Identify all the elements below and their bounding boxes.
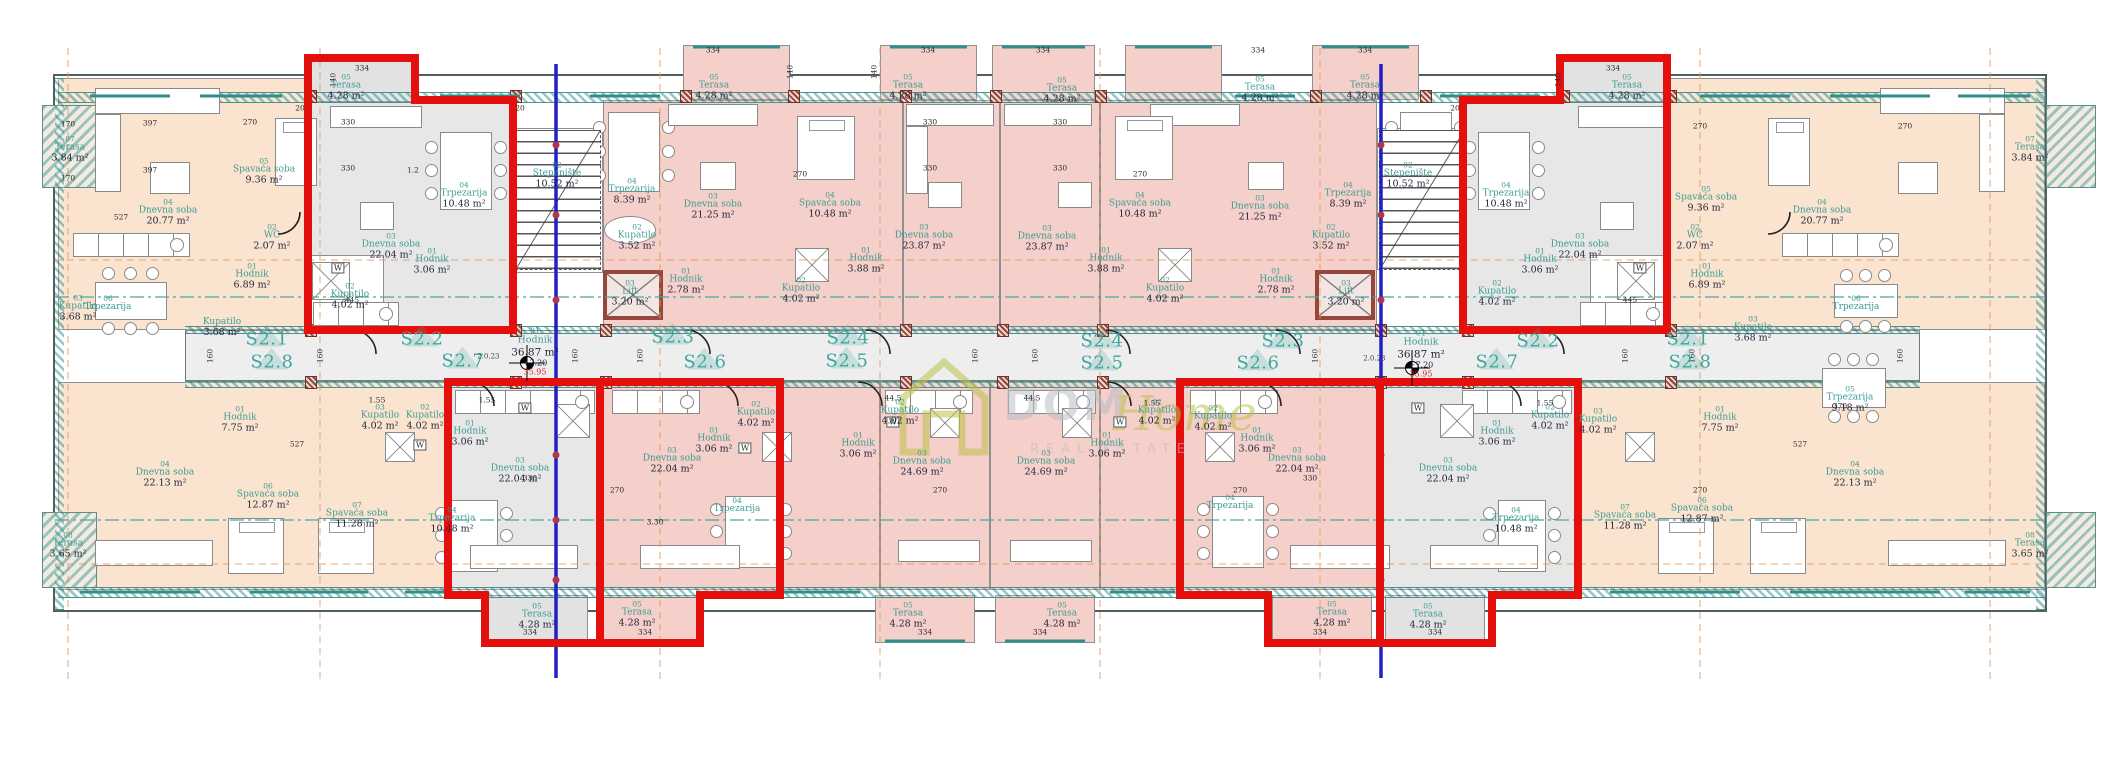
unit-label: S2.8 bbox=[1669, 352, 1712, 373]
chair bbox=[124, 322, 137, 335]
dimension-label: 1.55 bbox=[479, 396, 496, 405]
shower bbox=[762, 432, 792, 462]
shower bbox=[1205, 432, 1235, 462]
room-label: 03Dnevna soba21.25 m² bbox=[684, 193, 743, 222]
room-label: 02Kupatilo4.02 m² bbox=[1194, 405, 1232, 434]
room-label: 05Terasa4.28 m² bbox=[328, 74, 365, 103]
unit-label: S2.5 bbox=[1081, 353, 1124, 374]
room-label: 02WC2.07 m² bbox=[254, 224, 291, 253]
room-label: 01Hodnik6.89 m² bbox=[1689, 263, 1726, 292]
room-label: 05Terasa4.28 m² bbox=[1609, 74, 1646, 103]
sofa bbox=[906, 104, 994, 126]
room-area: 4.02 m² bbox=[782, 295, 820, 305]
unit-triangle-mark bbox=[831, 324, 865, 346]
shower bbox=[385, 432, 415, 462]
dimension-label: 330 bbox=[341, 164, 355, 173]
room-label: 01Hodnik3.06 m² bbox=[414, 248, 451, 277]
room-label: 03Dnevna soba24.69 m² bbox=[1017, 450, 1076, 479]
unit-triangle-mark bbox=[446, 347, 480, 369]
unit-triangle-mark bbox=[1671, 325, 1705, 347]
room-label: 07Spavaća soba11.28 m² bbox=[1594, 504, 1656, 533]
column bbox=[1462, 376, 1474, 389]
floor-plan-canvas: 07Terasa3.84 m²04Dnevna soba20.77 m²05Sp… bbox=[0, 0, 2102, 768]
chair bbox=[435, 551, 448, 564]
unit-label: S2.8 bbox=[251, 352, 294, 373]
dimension-label: 160 bbox=[1031, 349, 1040, 363]
chair bbox=[710, 525, 723, 538]
room-area: 6.89 m² bbox=[234, 281, 271, 291]
coffee-table bbox=[360, 202, 394, 230]
room-area: 10.48 m² bbox=[1109, 210, 1171, 220]
shower bbox=[1062, 408, 1092, 438]
unit-label: S2.3 bbox=[652, 327, 695, 348]
room-label: 03Dnevna soba22.04 m² bbox=[1551, 233, 1610, 262]
room-label: 01Hodnik3.06 m² bbox=[696, 427, 733, 456]
column bbox=[1375, 376, 1387, 389]
washing-machine-mark: W bbox=[518, 403, 531, 414]
unit-label: S2.5 bbox=[826, 351, 869, 372]
room-area: 4.28 m² bbox=[1410, 621, 1447, 631]
room-label: 03Lift3.20 m² bbox=[612, 280, 649, 309]
room-label: 04Trpezarija8.39 m² bbox=[1325, 182, 1372, 211]
room-label: 02Kupatilo4.02 m² bbox=[331, 283, 369, 312]
coffee-table bbox=[1058, 182, 1092, 208]
washing-machine-mark: W bbox=[413, 440, 426, 451]
floor-plan: 07Terasa3.84 m²04Dnevna soba20.77 m²05Sp… bbox=[0, 0, 2102, 768]
room-area: 22.04 m² bbox=[362, 251, 421, 261]
chair bbox=[779, 525, 792, 538]
room-label: 05Terasa4.28 m² bbox=[1410, 603, 1447, 632]
kitchen-sink bbox=[170, 238, 184, 252]
sofa bbox=[1430, 545, 1538, 569]
hall-elevation: +7.20 bbox=[1397, 361, 1445, 370]
dimension-label: 160 bbox=[206, 349, 215, 363]
room-label: 05Terasa4.28 m² bbox=[619, 601, 656, 630]
unit-triangle-mark bbox=[255, 348, 289, 370]
column bbox=[997, 376, 1009, 389]
room-area: 3.52 m² bbox=[1312, 242, 1350, 252]
room-label: 01Hodnik2.78 m² bbox=[668, 268, 705, 297]
chair bbox=[1197, 547, 1210, 560]
sofa bbox=[1888, 540, 2006, 566]
unit-triangle-mark bbox=[1521, 327, 1555, 349]
room-area: 9.36 m² bbox=[233, 176, 295, 186]
chair bbox=[1840, 269, 1853, 282]
room-area: 3.68 m² bbox=[59, 313, 97, 323]
unit-triangle-mark bbox=[1673, 348, 1707, 370]
kitchen-sink bbox=[1879, 238, 1893, 252]
room-area: 3.88 m² bbox=[1088, 265, 1125, 275]
room-label: 04Trpezarija10.48 m² bbox=[1483, 182, 1530, 211]
room-area: 2.78 m² bbox=[1258, 286, 1295, 296]
room-area: 3.84 m² bbox=[52, 154, 89, 164]
dimension-label: 330 bbox=[1053, 118, 1067, 127]
unit-label: S2.4 bbox=[827, 328, 870, 349]
dimension-label: 160 bbox=[1311, 349, 1320, 363]
chair bbox=[1859, 269, 1872, 282]
unit-triangle-mark bbox=[405, 325, 439, 347]
room-label: 07Spavaća soba11.28 m² bbox=[326, 502, 388, 531]
dimension-label: 44.5 bbox=[1024, 394, 1041, 403]
room-area: 23.87 m² bbox=[1018, 243, 1077, 253]
room-area: 4.02 m² bbox=[331, 301, 369, 311]
room-label: 03Kupatilo3.68 m² bbox=[1734, 316, 1772, 345]
chair bbox=[1197, 525, 1210, 538]
bed-pillow bbox=[239, 522, 275, 533]
room-area: 3.06 m² bbox=[696, 445, 733, 455]
hall-level: 35.95 bbox=[511, 368, 559, 377]
dimension-label: 334 bbox=[1358, 46, 1372, 55]
dimension-label: 330 bbox=[923, 118, 937, 127]
dimension-label: 140 bbox=[1554, 73, 1563, 87]
corridor-hall-label: 01Hodnik36.87 m²+7.2035.952.0.23 bbox=[1397, 329, 1445, 380]
room-label: 05Spavaća soba9.36 m² bbox=[233, 158, 295, 187]
chair bbox=[494, 164, 507, 177]
room-area: 4.02 m² bbox=[1531, 422, 1569, 432]
sofa bbox=[1578, 106, 1670, 128]
room-label: 03Lift3.20 m² bbox=[1328, 280, 1365, 309]
unit-label: S2.2 bbox=[401, 329, 444, 350]
bed-pillow bbox=[283, 122, 310, 133]
kitchen-sink bbox=[1076, 395, 1090, 409]
room-label: 04Trpezarija bbox=[714, 497, 761, 515]
dimension-label: 140 bbox=[786, 65, 795, 79]
room-area: 20.77 m² bbox=[139, 217, 198, 227]
dimension-label: 527 bbox=[290, 440, 304, 449]
dimension-label: 170 bbox=[61, 174, 75, 183]
dimension-label: 397 bbox=[143, 166, 157, 175]
room-area: 22.04 m² bbox=[1551, 251, 1610, 261]
room-label: 03Dnevna soba22.04 m² bbox=[1268, 447, 1327, 476]
chair bbox=[779, 547, 792, 560]
room-label: 05Terasa4.28 m² bbox=[1044, 77, 1081, 106]
room-area: 3.68 m² bbox=[1734, 334, 1772, 344]
chair bbox=[1859, 320, 1872, 333]
dimension-label: 160 bbox=[636, 349, 645, 363]
room-label: 04Trpezarija10.48 m² bbox=[1493, 507, 1540, 536]
column bbox=[1420, 90, 1432, 103]
room-area: 4.02 m² bbox=[1146, 295, 1184, 305]
dimension-label: 270 bbox=[1898, 122, 1912, 131]
dimension-label: 445 bbox=[1623, 296, 1637, 305]
room-area: 4.02 m² bbox=[1138, 417, 1176, 427]
room-area: 21.25 m² bbox=[684, 211, 743, 221]
room-name: Trpezarija bbox=[714, 505, 761, 515]
column bbox=[510, 90, 522, 103]
unit-label: S2.7 bbox=[1476, 352, 1519, 373]
column bbox=[1665, 376, 1677, 389]
room-area: 3.06 m² bbox=[1479, 438, 1516, 448]
column bbox=[510, 376, 522, 389]
room-area: 22.04 m² bbox=[1419, 475, 1478, 485]
chair bbox=[146, 267, 159, 280]
room-label: 04Spavaća soba10.48 m² bbox=[1109, 192, 1171, 221]
sofa bbox=[1290, 545, 1390, 569]
room-area: 3.06 m² bbox=[1522, 266, 1559, 276]
dimension-label: 527 bbox=[114, 213, 128, 222]
room-label: 02Kupatilo4.02 m² bbox=[782, 277, 820, 306]
kitchen-sink bbox=[575, 395, 589, 409]
room-area: 10.48 m² bbox=[1493, 525, 1540, 535]
bed-pillow bbox=[1127, 120, 1164, 131]
chair bbox=[662, 169, 675, 182]
room-name: Trpezarija bbox=[1207, 502, 1254, 512]
room-label: 02WC2.07 m² bbox=[1677, 224, 1714, 253]
hall-elevation: +7.20 bbox=[511, 359, 559, 368]
room-area: 4.02 m² bbox=[1194, 423, 1232, 433]
room-area: 22.04 m² bbox=[643, 465, 702, 475]
column bbox=[1095, 90, 1107, 103]
room-area: 4.28 m² bbox=[890, 92, 927, 102]
room-label: 03Dnevna soba24.69 m² bbox=[893, 450, 952, 479]
room-label: 03Dnevna soba22.04 m² bbox=[362, 233, 421, 262]
room-area: 9.36 m² bbox=[1675, 204, 1737, 214]
room-label: 01Hodnik2.78 m² bbox=[1258, 268, 1295, 297]
room-label: 07Terasa3.84 m² bbox=[52, 136, 89, 165]
room-label: 05Terasa4.28 m² bbox=[696, 74, 733, 103]
room-area: 3.06 m² bbox=[840, 450, 877, 460]
coffee-table bbox=[928, 182, 962, 208]
room-label: 03Dnevna soba22.04 m² bbox=[491, 457, 550, 486]
chair bbox=[1532, 141, 1545, 154]
corridor-hall-label: 01Hodnik36.87 m²+7.2035.952.0.23 bbox=[511, 327, 559, 378]
dimension-label: 397 bbox=[143, 119, 157, 128]
room-label: 04Dnevna soba20.77 m² bbox=[139, 199, 198, 228]
chair bbox=[425, 164, 438, 177]
column bbox=[305, 376, 317, 389]
dimension-label: 160 bbox=[1621, 349, 1630, 363]
kitchen-sink bbox=[1646, 307, 1660, 321]
shower bbox=[1625, 432, 1655, 462]
unit-label: S2.2 bbox=[1517, 331, 1560, 352]
coffee-table bbox=[1898, 162, 1938, 194]
dimension-label: 160 bbox=[971, 349, 980, 363]
room-block bbox=[2046, 105, 2096, 188]
dimension-label: 334 bbox=[355, 64, 369, 73]
room-label: 02Kupatilo4.02 m² bbox=[1138, 399, 1176, 428]
dimension-label: 270 bbox=[1133, 170, 1147, 179]
room-label: 02Kupatilo4.02 m² bbox=[1146, 277, 1184, 306]
column bbox=[1375, 324, 1387, 337]
room-area: 10.52 m² bbox=[1384, 180, 1432, 190]
dimension-label: 527 bbox=[1793, 440, 1807, 449]
room-label: 01Hodnik3.06 m² bbox=[1479, 420, 1516, 449]
room-label: 02Kupatilo4.02 m² bbox=[881, 399, 919, 428]
kitchen-sink bbox=[379, 307, 393, 321]
kitchen-sink bbox=[953, 395, 967, 409]
sofa bbox=[1979, 114, 2005, 192]
sofa bbox=[898, 540, 980, 562]
unit-triangle-mark bbox=[1241, 349, 1275, 371]
room-label: 04Dnevna soba22.13 m² bbox=[136, 461, 195, 490]
room-area: 4.28 m² bbox=[1347, 92, 1384, 102]
hall-area: 36.87 m² bbox=[511, 347, 559, 359]
bed-pillow bbox=[1776, 122, 1803, 133]
hall-marker: 2.0.23 bbox=[1363, 355, 1385, 363]
room-label: 01Hodnik7.75 m² bbox=[1702, 406, 1739, 435]
column bbox=[997, 324, 1009, 337]
room-area: 7.75 m² bbox=[222, 424, 259, 434]
room-area: 12.87 m² bbox=[237, 501, 299, 511]
room-area: 8.39 m² bbox=[609, 196, 656, 206]
unit-label: S2.1 bbox=[1667, 329, 1710, 350]
dimension-label: 270 bbox=[1693, 486, 1707, 495]
room-area: 22.13 m² bbox=[1826, 479, 1885, 489]
dimension-label: 20 bbox=[1450, 104, 1460, 113]
room-label: 02Kupatilo4.02 m² bbox=[406, 404, 444, 433]
dimension-label: 270 bbox=[243, 118, 257, 127]
coffee-table bbox=[1600, 202, 1634, 230]
room-label: 04Trpezarija10.48 m² bbox=[429, 507, 476, 536]
room-area: 24.69 m² bbox=[1017, 468, 1076, 478]
unit-triangle-mark bbox=[1085, 349, 1119, 371]
room-area: 10.48 m² bbox=[1483, 200, 1530, 210]
dimension-label: 20 bbox=[295, 104, 305, 113]
room-label: 01Hodnik7.75 m² bbox=[222, 406, 259, 435]
room-label: 03Kupatilo4.02 m² bbox=[1579, 408, 1617, 437]
room-label: 02Kupatilo4.02 m² bbox=[737, 401, 775, 430]
unit-label: S2.6 bbox=[1237, 353, 1280, 374]
room-area: 2.07 m² bbox=[254, 242, 291, 252]
room-area: 4.28 m² bbox=[1609, 92, 1646, 102]
room-area: 4.28 m² bbox=[619, 619, 656, 629]
dimension-label: 1.2 bbox=[407, 166, 419, 175]
room-area: 4.28 m² bbox=[519, 621, 556, 631]
room-label: 01Hodnik3.06 m² bbox=[1089, 432, 1126, 461]
room-block bbox=[780, 382, 880, 590]
room-label: 04Spavaća soba10.48 m² bbox=[799, 192, 861, 221]
room-label: 01Hodnik3.06 m² bbox=[840, 432, 877, 461]
room-label: 05Terasa4.28 m² bbox=[1314, 601, 1351, 630]
column bbox=[680, 90, 692, 103]
room-label: 03Dnevna soba22.04 m² bbox=[643, 447, 702, 476]
staircase bbox=[1379, 130, 1465, 270]
hall-name: Hodnik bbox=[511, 336, 559, 347]
sofa bbox=[95, 88, 220, 114]
room-label: 02Kupatilo4.02 m² bbox=[1478, 280, 1516, 309]
room-area: 4.02 m² bbox=[1478, 298, 1516, 308]
dimension-label: 140 bbox=[870, 65, 879, 79]
room-area: 8.39 m² bbox=[1325, 200, 1372, 210]
hall-marker: 2.0.23 bbox=[477, 353, 499, 361]
washing-machine-mark: W bbox=[1411, 403, 1424, 414]
column bbox=[1462, 324, 1474, 337]
hall-name: Hodnik bbox=[1397, 338, 1445, 349]
room-label: Kupatilo3.68 m² bbox=[203, 318, 241, 338]
room-area: 22.13 m² bbox=[136, 479, 195, 489]
dimension-label: 20 bbox=[515, 104, 525, 113]
room-label: 03Dnevna soba22.04 m² bbox=[1419, 457, 1478, 486]
room-label: 03Dnevna soba23.87 m² bbox=[1018, 225, 1077, 254]
room-label: 02Stepenište10.52 m² bbox=[533, 162, 581, 191]
sofa bbox=[470, 545, 578, 569]
room-label: 05Spavaća soba9.36 m² bbox=[1675, 186, 1737, 215]
room-label: 02Kupatilo4.02 m² bbox=[1531, 404, 1569, 433]
dimension-label: 170 bbox=[61, 120, 75, 129]
room-area: 22.04 m² bbox=[491, 475, 550, 485]
room-label: 01Hodnik3.88 m² bbox=[1088, 247, 1125, 276]
chair bbox=[1840, 320, 1853, 333]
bed-pillow bbox=[1761, 522, 1797, 533]
room-label: 06Spavaća soba12.87 m² bbox=[237, 483, 299, 512]
room-area: 4.28 m² bbox=[1314, 619, 1351, 629]
column bbox=[900, 324, 912, 337]
coffee-table bbox=[1248, 162, 1284, 190]
column bbox=[600, 324, 612, 337]
room-area: 3.06 m² bbox=[452, 438, 489, 448]
chair bbox=[1548, 529, 1561, 542]
sofa bbox=[640, 545, 740, 569]
room-area: 3.52 m² bbox=[618, 242, 656, 252]
dimension-label: 160 bbox=[571, 349, 580, 363]
room-area: 6.89 m² bbox=[1689, 281, 1726, 291]
sofa bbox=[906, 126, 928, 194]
column bbox=[305, 90, 317, 103]
shower bbox=[930, 408, 960, 438]
room-label: 06Trpezarija bbox=[1833, 295, 1880, 313]
room-area: 4.02 m² bbox=[1579, 426, 1617, 436]
room-area: 4.02 m² bbox=[406, 422, 444, 432]
sofa bbox=[1010, 540, 1092, 562]
dimension-label: 330 bbox=[923, 164, 937, 173]
room-area: 3.06 m² bbox=[1089, 450, 1126, 460]
room-area: 3.68 m² bbox=[203, 328, 241, 338]
room-area: 24.69 m² bbox=[893, 468, 952, 478]
sofa bbox=[1880, 88, 2005, 114]
room-label: 05Trpezarija9.18 m² bbox=[1827, 386, 1874, 415]
room-label: 03Kupatilo3.68 m² bbox=[59, 295, 97, 324]
dimension-label: 334 bbox=[706, 46, 720, 55]
wall-hatch bbox=[58, 587, 2046, 598]
room-label: 05Terasa4.28 m² bbox=[890, 74, 927, 103]
chair bbox=[1532, 164, 1545, 177]
room-area: 4.28 m² bbox=[890, 620, 927, 630]
room-label: 08Terasa3.65 m² bbox=[50, 532, 87, 561]
chair bbox=[1266, 547, 1279, 560]
dimension-label: 270 bbox=[793, 170, 807, 179]
room-label: 03Kupatilo4.02 m² bbox=[361, 404, 399, 433]
room-label: 03Dnevna soba23.87 m² bbox=[895, 224, 954, 253]
room-label: 07Terasa3.84 m² bbox=[2012, 136, 2049, 165]
room-area: 4.28 m² bbox=[1044, 95, 1081, 105]
room-label: 05Terasa4.28 m² bbox=[1044, 602, 1081, 631]
room-label: 05Terasa4.28 m² bbox=[519, 603, 556, 632]
room-label: 04Dnevna soba20.77 m² bbox=[1793, 199, 1852, 228]
sofa bbox=[95, 114, 121, 192]
wall-hatch bbox=[185, 326, 1920, 334]
staircase bbox=[515, 130, 601, 270]
room-area: 4.28 m² bbox=[1044, 620, 1081, 630]
room-label: 04Trpezarija bbox=[1207, 494, 1254, 512]
room-block bbox=[1000, 100, 1100, 330]
chair bbox=[146, 322, 159, 335]
room-area: 2.07 m² bbox=[1677, 242, 1714, 252]
room-label: 02Kupatilo3.52 m² bbox=[618, 224, 656, 253]
dimension-label: 160 bbox=[316, 349, 325, 363]
chair bbox=[1266, 525, 1279, 538]
column bbox=[600, 376, 612, 389]
room-area: 4.28 m² bbox=[696, 92, 733, 102]
room-label: 04Trpezarija8.39 m² bbox=[609, 178, 656, 207]
dimension-label: 334 bbox=[921, 46, 935, 55]
dimension-label: 3.30 bbox=[647, 518, 664, 527]
dimension-label: 270 bbox=[1693, 122, 1707, 131]
dimension-label: 270 bbox=[610, 486, 624, 495]
room-label: 01Hodnik3.06 m² bbox=[452, 420, 489, 449]
room-name: Trpezarija bbox=[1833, 303, 1880, 313]
shower bbox=[556, 404, 590, 438]
column bbox=[900, 376, 912, 389]
